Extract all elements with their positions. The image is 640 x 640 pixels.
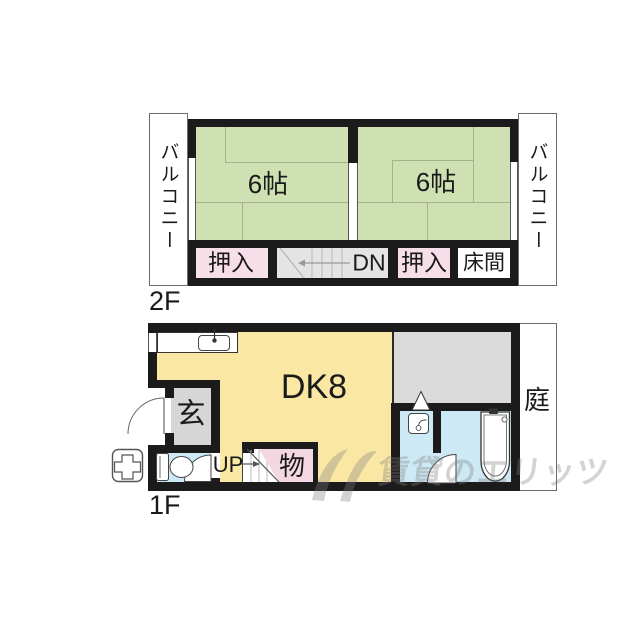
floorplan-canvas: バルコニー バルコニー 6帖 6帖 押入 DN 押入 床間 2F DK8 玄 U…	[0, 0, 640, 640]
entrance-label: 玄	[176, 401, 205, 430]
watermark-logo-icon	[312, 449, 377, 502]
closet-left-label: 押入	[208, 252, 254, 275]
balcony-left-label: バルコニー	[159, 142, 178, 252]
plan-symbols-layer	[0, 0, 640, 640]
garden-label: 庭	[524, 387, 550, 413]
entry-door-swing-icon	[128, 398, 164, 434]
balcony-right-label: バルコニー	[528, 142, 547, 252]
storage-label: 物	[279, 453, 305, 479]
watermark-text: 賃貸のエリッツ	[376, 456, 610, 488]
closet-right-label: 押入	[401, 252, 447, 275]
dk-label: DK8	[281, 370, 347, 404]
door-triangle-icon	[412, 392, 430, 411]
dn-arrow-head-icon	[298, 260, 305, 267]
toilet-bowl-icon	[170, 457, 193, 478]
toilet-tank-icon	[157, 454, 169, 481]
tokonoma-label: 床間	[463, 253, 505, 274]
stairs-down-label: DN	[352, 252, 385, 275]
room-left-label: 6帖	[248, 171, 288, 197]
bathtub-drain-icon	[502, 417, 507, 422]
room-right-label: 6帖	[416, 169, 456, 195]
floor-2f-label: 2F	[149, 288, 181, 315]
bathtub-faucet-icon	[489, 409, 498, 415]
floor-1f-label: 1F	[149, 492, 181, 519]
stairs-up-label: UP	[213, 454, 244, 476]
kitchen-faucet-dot	[212, 338, 216, 342]
